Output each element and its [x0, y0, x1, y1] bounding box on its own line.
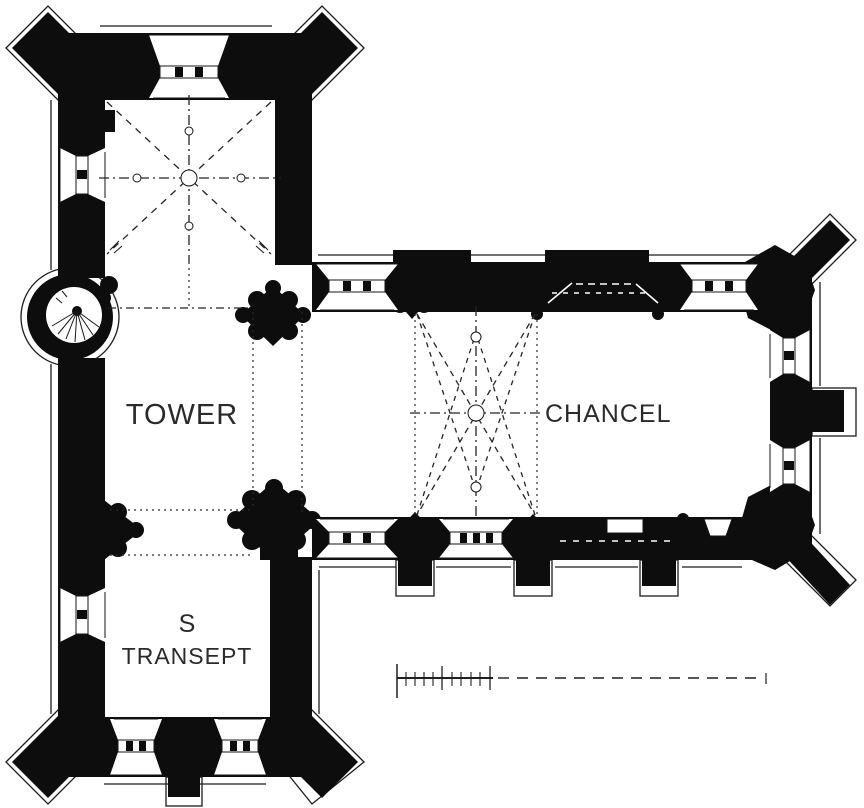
tower-label: TOWER	[126, 399, 238, 431]
vault-boss	[133, 174, 141, 182]
pier-tower-ne	[235, 280, 311, 346]
tower-west-window	[60, 148, 105, 202]
vault-boss	[237, 174, 245, 182]
pier-nave-north	[388, 264, 436, 319]
transept-label-line2: TRANSEPT	[122, 643, 253, 669]
transept-south-window-east	[214, 719, 266, 775]
chancel-south-buttress-3	[642, 560, 676, 586]
west-wall-mid	[58, 358, 105, 557]
transept-south-window-west	[110, 719, 162, 775]
vault-boss	[468, 405, 484, 421]
chancel-north-pilaster-west	[393, 250, 471, 264]
scale-bar	[397, 664, 766, 698]
chancel-vault	[410, 306, 543, 520]
transept-west-window	[60, 588, 105, 642]
vault-boss	[185, 127, 193, 135]
transept-east-wall	[270, 557, 312, 717]
tower-east-wall	[275, 100, 312, 265]
vault-boss	[185, 222, 193, 230]
vault-boss	[471, 332, 481, 342]
church-floor-plan: TOWER CHANCEL S TRANSEPT	[0, 0, 864, 808]
chancel-south-buttress-2	[516, 560, 550, 586]
transept-south-buttress	[168, 777, 200, 797]
vault-boss	[471, 482, 481, 492]
pier-tower-se	[227, 479, 321, 561]
chancel-label: CHANCEL	[545, 400, 671, 428]
chancel-east-window-north	[770, 330, 810, 382]
transept-south-wall	[58, 717, 312, 777]
tower-north-window	[149, 35, 229, 98]
church-floor-plan-page: TOWER CHANCEL S TRANSEPT	[0, 0, 864, 808]
chancel-north-pilaster-east	[545, 250, 649, 264]
vault-respond	[652, 308, 664, 320]
vault-respond	[677, 513, 689, 525]
tower-vault	[99, 95, 281, 262]
spiral-stair	[46, 287, 102, 343]
chancel-north-window	[680, 264, 758, 310]
chancel-south-window	[439, 519, 513, 558]
pier-tower-sw	[104, 500, 144, 560]
chancel-east-window-south	[770, 440, 810, 492]
vault-boss	[181, 170, 197, 186]
south-wall-recess	[607, 519, 643, 533]
chancel-east-buttress	[812, 390, 844, 432]
transept-label-line1: S	[179, 610, 196, 638]
chancel-east-mid-pier	[770, 385, 812, 440]
